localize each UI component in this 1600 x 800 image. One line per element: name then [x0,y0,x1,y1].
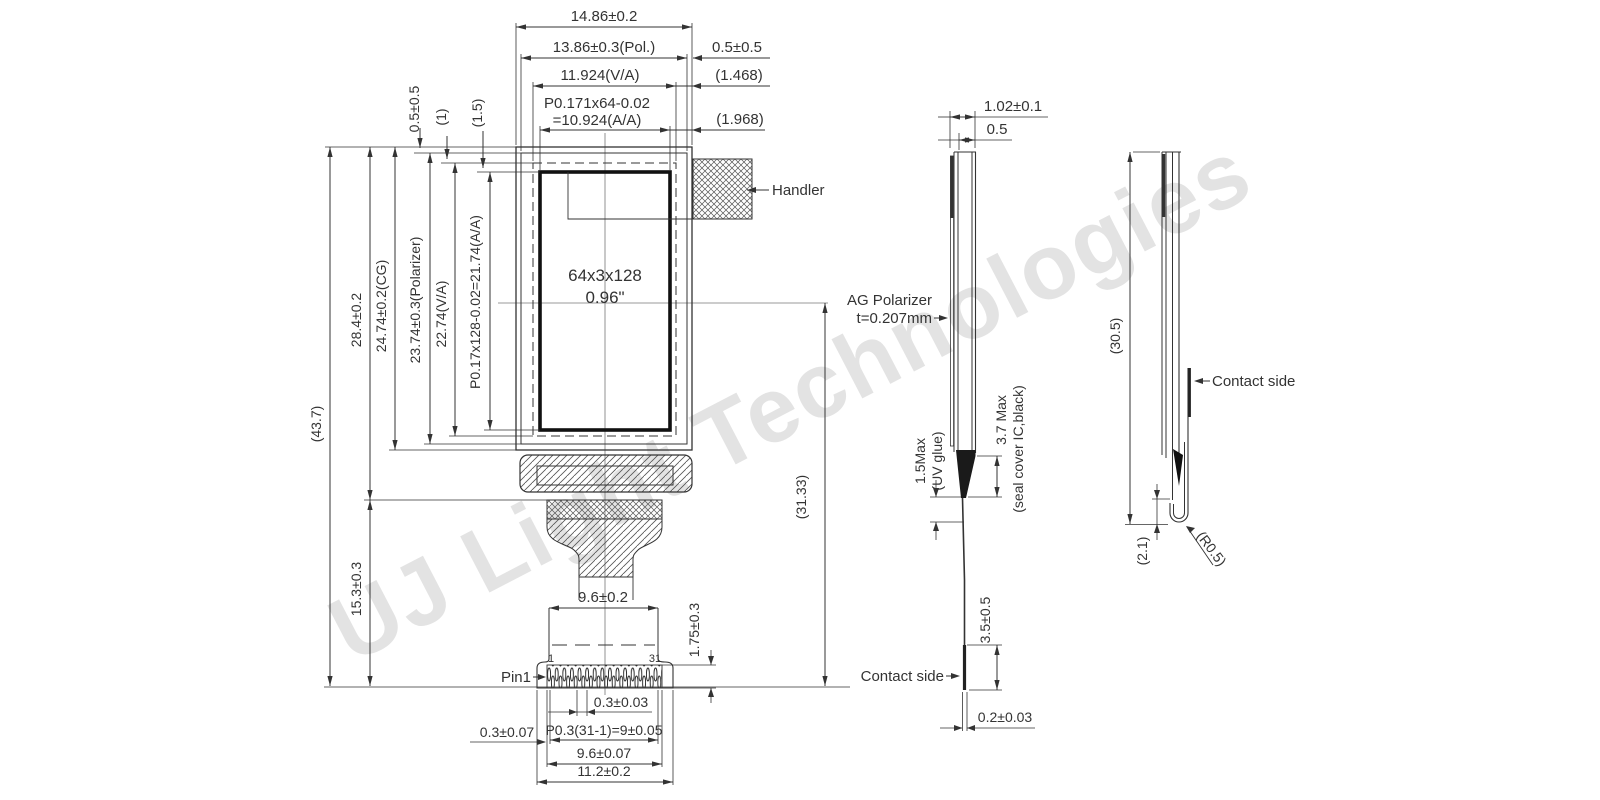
ag-polarizer-label-line2: t=0.207mm [857,310,932,327]
folded-polarizer-dark [1162,154,1165,217]
dim-pin-pitch: P0.3(31-1)=9±0.05 [545,722,662,738]
dim-connector-width: 11.2±0.2 [577,763,631,779]
dim-tail-height: 15.3±0.3 [348,562,364,617]
dim-uv-glue-line2: (UV glue) [929,431,945,490]
display-size-label: 0.96" [585,288,624,307]
dim-edge-margin: 0.3±0.07 [480,724,535,740]
dim-glass-thickness: 0.5 [987,121,1008,138]
dim-gap2: (1.5) [469,99,485,128]
drawing-canvas: UJ Light Technologies Handler 64x3x128 0… [0,0,1600,800]
dim-center-to-bottom: (31.33) [793,475,809,519]
dim-seal-line2: (seal cover IC,black) [1010,385,1026,513]
dim-va-width: 11.924(V/A) [561,67,640,84]
dim-pin-width: 0.3±0.03 [594,694,649,710]
dim-polarizer-height: 23.74±0.3(Polarizer) [407,237,423,364]
dim-gap1: (1) [433,108,449,125]
dim-aa-right-margin: (1.968) [716,111,764,128]
dim-va-right-margin: (1.468) [715,67,763,84]
dim-fold-height: (2.1) [1134,537,1150,566]
side-contact-leader-arrow [951,673,960,679]
dim-aa-width-line1: P0.171x64-0.02 [544,95,650,112]
bend-radius-leader-arrow [1186,526,1195,533]
dim-contact-width: 9.6±0.07 [577,745,632,761]
dim-overall-width: 14.86±0.2 [571,8,638,25]
pin1-label: Pin1 [501,669,531,686]
dim-cg-height: 24.74±0.2(CG) [373,260,389,353]
mechanical-drawing: UJ Light Technologies Handler 64x3x128 0… [0,0,1600,800]
seal-cover-wedge [956,450,976,498]
pin-last-label: 31 [649,653,661,665]
side-contact-label: Contact side [861,668,944,685]
dim-seal-line1: 3.7 Max [993,395,1009,445]
pin1-leader-arrow [538,674,546,680]
dim-overall-height: (43.7) [308,406,324,443]
handler-label: Handler [772,182,825,199]
folded-contact-leader-arrow [1194,378,1203,384]
dim-uv-glue-line1: 1.5Max [912,438,928,484]
ag-polarizer-label-line1: AG Polarizer [847,292,932,309]
dim-va-height: 22.74(V/A) [433,281,449,348]
dim-fpc-width: 9.6±0.2 [578,589,628,606]
dim-aa-height: P0.17x128-0.02=21.74(A/A) [467,215,483,389]
dim-contact-height: 3.5±0.5 [977,596,993,643]
dim-aa-width-line2: =10.924(A/A) [553,112,642,129]
dim-right-margin: 0.5±0.5 [712,39,762,56]
handler-hatch [693,159,752,219]
pin-contacts [547,665,662,688]
side-view: 1.02±0.1 0.5 AG Polarizer t=0.207mm 1.5M… [847,98,1048,731]
folded-contact-label: Contact side [1212,373,1295,390]
dim-fpc-thickness: 0.2±0.03 [978,709,1033,725]
display-resolution-label: 64x3x128 [568,266,642,285]
dim-folded-height: (30.5) [1107,318,1123,355]
dim-total-thickness: 1.02±0.1 [984,98,1042,115]
pin-first-label: 1 [548,653,554,665]
dim-pin-length: 1.75±0.3 [686,603,702,658]
polarizer-profile-dark [951,156,954,218]
seal-area-hatch [520,455,692,492]
dim-top-margin: 0.5±0.5 [406,85,422,132]
dim-panel-height: 28.4±0.2 [348,293,364,348]
watermark-text: UJ Light Technologies [314,120,1267,682]
fpc-bond-hatch [547,500,662,519]
folded-seal-wedge [1173,449,1183,486]
dim-polarizer-width: 13.86±0.3(Pol.) [553,39,655,56]
